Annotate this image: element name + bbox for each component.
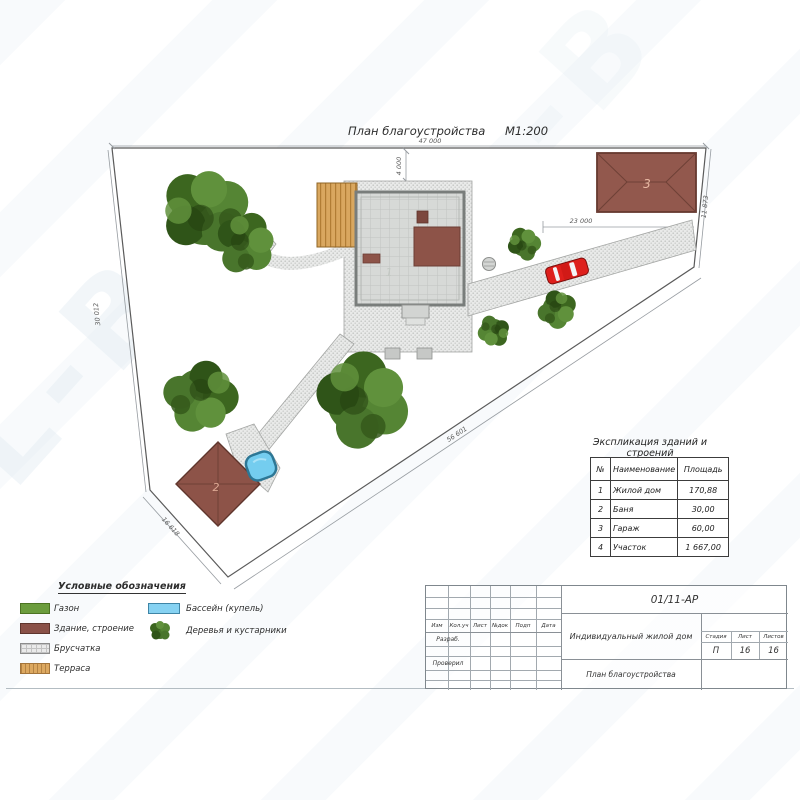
- tb-header-list: Лист: [470, 619, 490, 632]
- drawing-sheet: L-B L-B План благоустройства М1:200: [0, 0, 800, 800]
- title-block: Изм Кол.уч Лист №док Подп Дата Разраб. П…: [425, 585, 787, 689]
- house-roof-section: [414, 227, 460, 266]
- cell-number: 1: [591, 481, 611, 500]
- terrace-deck: [317, 183, 357, 247]
- paving-swatch: [20, 643, 50, 654]
- tb-header-ndok: №док: [490, 619, 510, 632]
- tb-row-proveril: Проверил: [426, 656, 470, 670]
- explication-header: №: [591, 458, 611, 481]
- explication-table: № Наименование Площадь 1 Жилой дом 170,8…: [590, 457, 729, 557]
- legend-item-label: Бассейн (купель): [186, 604, 263, 614]
- cell-area: 170,88: [678, 481, 729, 500]
- cell-name: Баня: [611, 500, 678, 519]
- tb-sheet-label: Лист: [731, 631, 759, 642]
- tb-header-podp: Подп: [510, 619, 536, 632]
- dim-right: 11 873: [700, 195, 710, 218]
- building-swatch: [20, 623, 50, 634]
- cell-area: 1 667,00: [678, 538, 729, 557]
- table-row: 1 Жилой дом 170,88: [591, 481, 729, 500]
- table-row: 2 Баня 30,00: [591, 500, 729, 519]
- legend-item-label: Деревья и кустарники: [186, 626, 287, 636]
- explication-title: Экспликация зданий и строений: [570, 437, 730, 459]
- bathhouse-number: 2: [213, 481, 220, 494]
- porch: [402, 305, 429, 318]
- cell-number: 4: [591, 538, 611, 557]
- dim-garage: 23 000: [570, 217, 593, 225]
- tb-sheet-name: План благоустройства: [563, 659, 699, 690]
- cell-number: 3: [591, 519, 611, 538]
- legend-item-label: Терраса: [54, 664, 90, 674]
- garage: 3: [597, 153, 696, 212]
- explication-header: Наименование: [611, 458, 678, 481]
- tb-header-koluch: Кол.уч: [448, 619, 470, 632]
- tb-stage-value: П: [701, 642, 731, 659]
- dim-top: 47 000: [419, 137, 442, 145]
- tb-sheets-value: 16: [759, 642, 788, 659]
- cell-area: 60,00: [678, 519, 729, 538]
- tb-sheet-value: 16: [731, 642, 759, 659]
- tb-row-razrab: Разраб.: [426, 632, 470, 646]
- tb-doc-number: 01/11-АР: [561, 586, 788, 613]
- dim-house-offset: 4 000: [395, 157, 403, 176]
- tb-stage-label: Стадия: [701, 631, 731, 642]
- cell-name: Жилой дом: [611, 481, 678, 500]
- explication-header: Площадь: [678, 458, 729, 481]
- garage-number: 3: [643, 177, 651, 191]
- legend-title: Условные обозначения: [58, 581, 186, 594]
- cell-name: Участок: [611, 538, 678, 557]
- house-number: 1: [386, 266, 393, 279]
- tb-project-name: Индивидуальный жилой дом: [563, 613, 699, 659]
- chimney: [417, 211, 428, 223]
- tb-header-data: Дата: [536, 619, 561, 632]
- legend-item-label: Здание, строение: [54, 624, 134, 634]
- cell-name: Гараж: [611, 519, 678, 538]
- tb-header-izm: Изм: [426, 619, 448, 632]
- cell-number: 2: [591, 500, 611, 519]
- legend-item-label: Брусчатка: [54, 644, 100, 654]
- lawn-swatch: [20, 603, 50, 614]
- table-row: 4 Участок 1 667,00: [591, 538, 729, 557]
- legend-item-label: Газон: [54, 604, 79, 614]
- dim-left: 30 012: [92, 302, 102, 325]
- tree-icon: [148, 619, 172, 643]
- terrace-swatch: [20, 663, 50, 674]
- tb-sheets-label: Листов: [759, 631, 788, 642]
- cell-area: 30,00: [678, 500, 729, 519]
- well: [483, 258, 496, 271]
- table-row: 3 Гараж 60,00: [591, 519, 729, 538]
- pool-swatch: [148, 603, 180, 614]
